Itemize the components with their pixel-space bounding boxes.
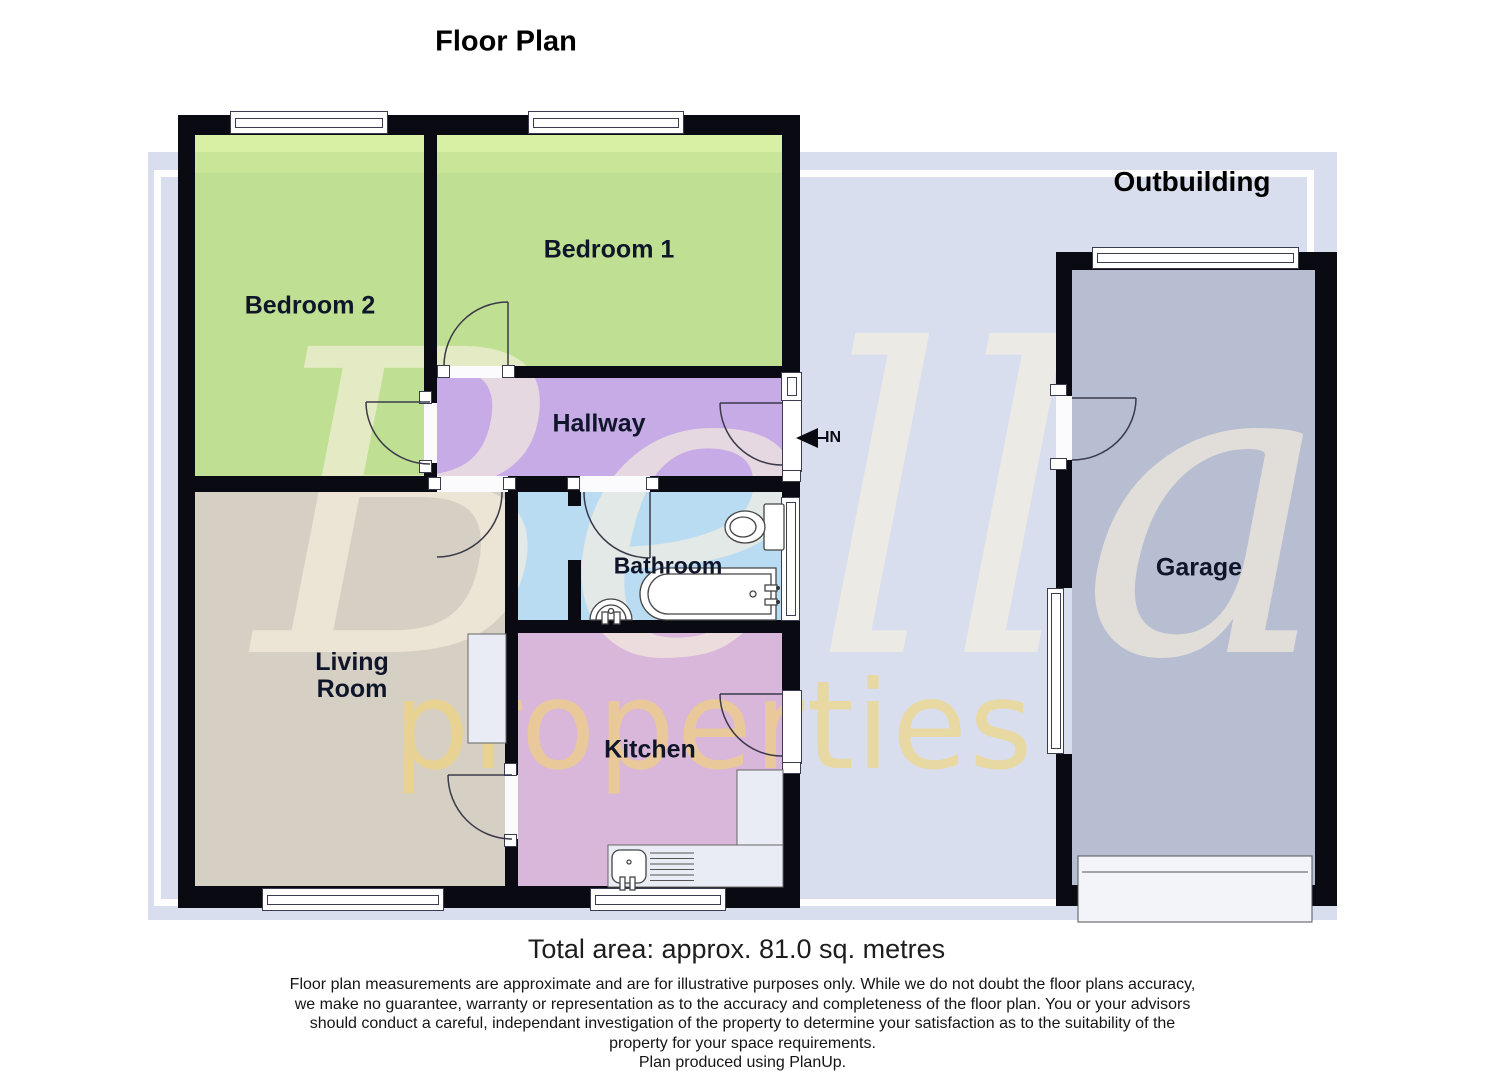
plan-credit: Plan produced using PlanUp. bbox=[0, 1053, 1485, 1073]
bedroom1-door-swing bbox=[444, 302, 508, 366]
label-garage: Garage bbox=[1156, 555, 1242, 582]
label-bedroom-1: Bedroom 1 bbox=[544, 237, 675, 264]
page-title: Floor Plan bbox=[435, 26, 577, 59]
label-living-line1: Living bbox=[315, 648, 389, 676]
plan-detail-overlay bbox=[0, 0, 1485, 1080]
bedroom2-door-swing bbox=[366, 402, 430, 464]
total-area-text: Total area: approx. 81.0 sq. metres bbox=[0, 934, 1473, 965]
label-living-room: Living Room bbox=[315, 649, 389, 703]
garage-door bbox=[1078, 856, 1312, 922]
label-hallway: Hallway bbox=[552, 411, 645, 438]
disclaimer: Floor plan measurements are approximate … bbox=[0, 975, 1485, 1073]
label-bedroom-2: Bedroom 2 bbox=[245, 293, 376, 320]
living-room-alcove bbox=[468, 634, 506, 743]
kitchen-back-door-swing bbox=[720, 694, 782, 756]
kitchen-sink-tap bbox=[620, 877, 625, 890]
disclaimer-line: we make no guarantee, warranty or repres… bbox=[0, 995, 1485, 1015]
kitchen-living-door-swing bbox=[448, 775, 512, 839]
toilet-cistern bbox=[764, 504, 784, 550]
living-room-door-swing bbox=[437, 492, 502, 557]
entrance-in-label: IN bbox=[825, 429, 841, 447]
kitchen-sink bbox=[612, 850, 646, 883]
bathroom-sink-tap bbox=[614, 612, 620, 624]
kitchen-sink-tap bbox=[630, 877, 635, 890]
label-living-line2: Room bbox=[317, 675, 388, 703]
floor-plan-page: Bella properties bbox=[0, 0, 1485, 1080]
disclaimer-line: Floor plan measurements are approximate … bbox=[0, 975, 1485, 995]
disclaimer-line: property for your space requirements. bbox=[0, 1034, 1485, 1054]
disclaimer-line: should conduct a careful, independant in… bbox=[0, 1014, 1485, 1034]
label-kitchen: Kitchen bbox=[604, 737, 696, 764]
toilet-bowl bbox=[725, 511, 765, 543]
label-bathroom: Bathroom bbox=[614, 554, 723, 579]
bathtub-tap bbox=[765, 585, 777, 591]
garage-side-door-swing bbox=[1072, 398, 1136, 460]
bathtub-tap-dot bbox=[776, 600, 780, 604]
bathroom-door-swing bbox=[584, 492, 650, 558]
bathroom-sink-tap bbox=[602, 612, 608, 624]
bathtub-tap bbox=[765, 599, 777, 605]
label-outbuilding: Outbuilding bbox=[1113, 167, 1270, 197]
entrance-arrow-icon bbox=[796, 428, 818, 448]
kitchen-counter-side bbox=[737, 770, 783, 846]
bathtub-tap-dot bbox=[776, 586, 780, 590]
entrance-door-swing bbox=[720, 403, 782, 465]
